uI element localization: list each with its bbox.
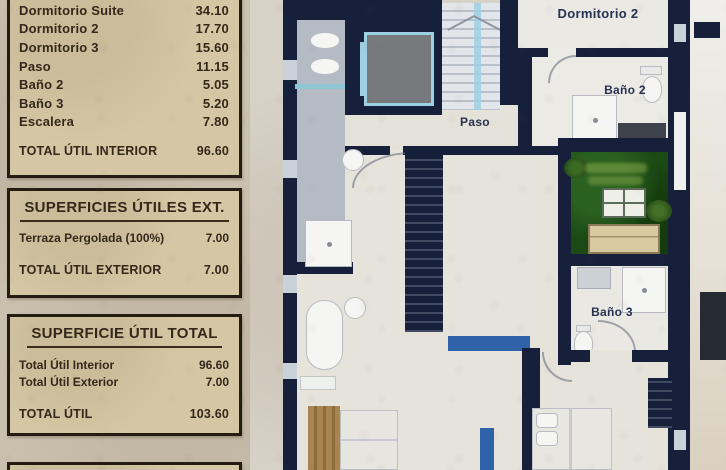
interior-rows: Dormitorio Suite 34.10 Dormitorio 2 17.7… — [10, 1, 239, 131]
row-label: Baño 2 — [19, 77, 64, 92]
toilet-suite — [310, 32, 340, 49]
total-row: TOTAL ÚTIL EXTERIOR 7.00 — [10, 263, 239, 277]
total-row: TOTAL ÚTIL 103.60 — [10, 407, 239, 421]
wardrobe-bottom-right — [648, 378, 672, 428]
table-row: Paso 11.15 — [10, 57, 239, 76]
row-value: 34.10 — [195, 3, 229, 18]
row-value: 7.00 — [206, 375, 229, 389]
label-bano-3: Baño 3 — [582, 305, 642, 319]
table-title: SUPERFICIE ÚTIL TOTAL — [10, 317, 239, 348]
total-value: 96.60 — [197, 144, 229, 158]
pillow — [536, 431, 558, 446]
table-row: Dormitorio 3 15.60 — [10, 38, 239, 57]
toilet-tank-bano2 — [640, 66, 662, 75]
window-right-1 — [674, 24, 686, 42]
bathtub — [306, 300, 343, 370]
floor-plan: Dormitorio 2 Baño 2 Paso Baño 3 — [250, 0, 726, 470]
bed-bottom-left — [340, 410, 398, 470]
total-label: TOTAL ÚTIL — [19, 407, 93, 421]
total-value: 103.60 — [190, 407, 229, 421]
row-label: Baño 3 — [19, 96, 64, 111]
row-value: 5.05 — [203, 77, 229, 92]
interior-areas-table: Dormitorio Suite 34.10 Dormitorio 2 17.7… — [7, 0, 242, 178]
window-left-4 — [283, 363, 297, 379]
pillow — [536, 413, 558, 428]
surface-tables-panel: Dormitorio Suite 34.10 Dormitorio 2 17.7… — [0, 0, 256, 470]
row-value: 7.80 — [203, 114, 229, 129]
total-label: TOTAL ÚTIL EXTERIOR — [19, 263, 161, 277]
sink-round-1 — [342, 149, 364, 171]
shower-glass-line — [295, 84, 345, 89]
window-left-2 — [283, 160, 297, 178]
table-row: Dormitorio Suite 34.10 — [10, 1, 239, 20]
screenshot-root: Dormitorio Suite 34.10 Dormitorio 2 17.7… — [0, 0, 726, 470]
label-bano-2: Baño 2 — [590, 83, 660, 97]
total-value: 7.00 — [204, 263, 229, 277]
window-right-3 — [674, 430, 686, 450]
table-row: Total Útil Exterior 7.00 — [10, 373, 239, 390]
shower-drain-icon — [593, 118, 598, 123]
wardrobe-suite — [405, 152, 443, 332]
next-table-partial — [7, 462, 242, 470]
shower-drain-icon — [642, 288, 647, 293]
elevator-door-line — [360, 42, 364, 96]
row-label: Terraza Pergolada (100%) — [19, 231, 164, 245]
terrace-sofa — [588, 224, 660, 254]
wall-terrace-top — [558, 138, 668, 152]
row-label: Paso — [19, 59, 51, 74]
table-row: Escalera 7.80 — [10, 113, 239, 132]
plan-outer-margin — [690, 0, 726, 470]
door-gap-bano3 — [590, 350, 632, 362]
stairs — [442, 3, 500, 110]
table-row: Baño 2 5.05 — [10, 75, 239, 94]
window-left-3 — [283, 275, 297, 293]
row-value: 17.70 — [195, 21, 229, 36]
row-label: Dormitorio Suite — [19, 3, 124, 18]
exterior-areas-table: SUPERFICIES ÚTILES EXT. Terraza Pergolad… — [7, 188, 242, 298]
total-row: TOTAL ÚTIL INTERIOR 96.60 — [10, 144, 239, 158]
blue-wall-accent-2 — [480, 428, 494, 470]
row-label: Total Útil Interior — [19, 358, 114, 372]
row-value: 15.60 — [195, 40, 229, 55]
row-value: 7.00 — [206, 231, 229, 245]
wall-top-left — [283, 0, 345, 20]
sink-round-2 — [344, 297, 366, 319]
total-areas-table: SUPERFICIE ÚTIL TOTAL Total Útil Interio… — [7, 314, 242, 436]
bed-headboard-wood — [308, 406, 340, 470]
row-value: 5.20 — [203, 96, 229, 111]
blue-wall-accent-1 — [448, 336, 530, 351]
watermark-blur — [588, 176, 643, 185]
table-title: SUPERFICIES ÚTILES EXT. — [10, 191, 239, 222]
wall-stairs-right — [500, 0, 518, 105]
terrace-table — [602, 188, 646, 218]
row-label: Total Útil Exterior — [19, 375, 118, 389]
outer-dark-block — [700, 292, 726, 360]
watermark-blur — [585, 163, 647, 173]
total-label: TOTAL ÚTIL INTERIOR — [19, 144, 157, 158]
row-label: Dormitorio 3 — [19, 40, 99, 55]
table-row: Terraza Pergolada (100%) 7.00 — [10, 231, 239, 245]
table-row: Baño 3 5.20 — [10, 94, 239, 113]
wall-outer-stub — [694, 22, 720, 38]
wall-terrace-bottom — [563, 254, 668, 266]
wall-bano2-left — [518, 48, 532, 148]
plant-icon — [646, 200, 672, 222]
table-row: Total Útil Interior 96.60 — [10, 356, 239, 373]
window-left-1 — [283, 60, 297, 80]
label-dormitorio-2: Dormitorio 2 — [528, 6, 668, 21]
shower-suite — [305, 220, 352, 267]
window-right-2 — [674, 112, 686, 190]
row-label: Dormitorio 2 — [19, 21, 99, 36]
row-value: 96.60 — [199, 358, 229, 372]
table-row: Dormitorio 2 17.70 — [10, 20, 239, 39]
row-value: 11.15 — [196, 59, 229, 74]
bath-mat — [300, 376, 336, 390]
row-label: Escalera — [19, 114, 74, 129]
elevator-cabin — [364, 32, 434, 106]
shower-drain-icon — [327, 242, 332, 247]
bidet-suite — [310, 58, 340, 75]
label-paso: Paso — [450, 115, 500, 129]
vanity-bano3 — [577, 267, 611, 289]
